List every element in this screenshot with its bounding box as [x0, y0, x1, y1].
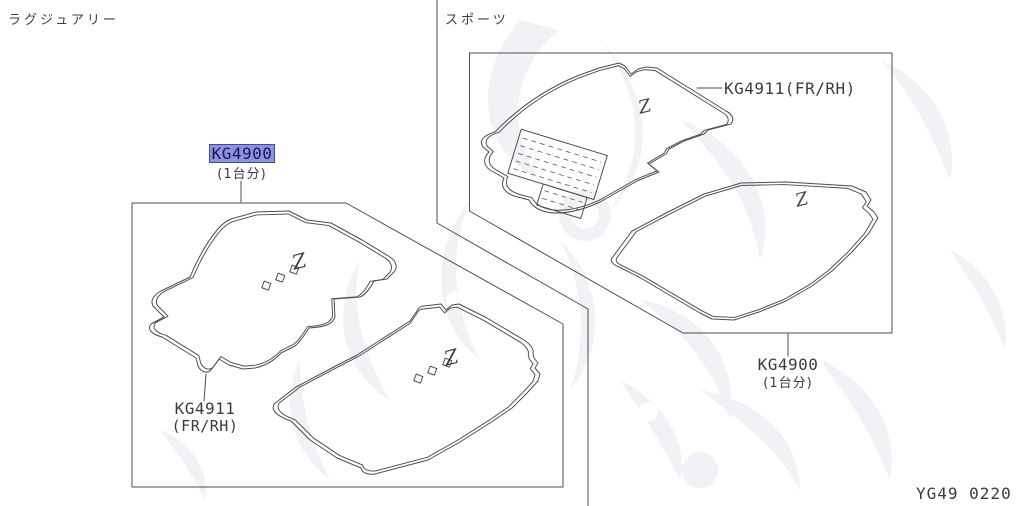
sport-front-mat-drawing: Z — [481, 63, 732, 221]
part-code-luxury-set[interactable]: KG4900 — [209, 144, 276, 163]
sport-rear-mat-drawing: Z — [611, 182, 878, 320]
parts-diagram-canvas: Z Z — [0, 0, 1024, 506]
z-emblem: Z — [289, 248, 310, 275]
position-note-luxury-front: (FR/RH) — [172, 417, 239, 435]
luxury-rear-mat-drawing: Z — [273, 304, 540, 474]
z-emblem: Z — [441, 344, 462, 371]
luxury-front-mat-drawing: Z — [149, 211, 396, 372]
part-code-sport-set[interactable]: KG4900 — [758, 355, 819, 374]
luxury-set-label: KG4900 (1台分) — [199, 144, 285, 182]
sport-set-label: KG4900 (1台分) — [748, 356, 828, 392]
z-emblem: Z — [635, 95, 654, 119]
section-title-sport: スポーツ — [445, 9, 509, 28]
z-emblem: Z — [792, 188, 811, 212]
diagram-line-art: Z Z — [0, 0, 1024, 506]
leader-line-luxury-front — [204, 374, 206, 401]
qty-note-luxury-set: (1台分) — [217, 167, 266, 182]
section-title-luxury: ラグジュアリー — [8, 9, 119, 28]
luxury-front-label: KG4911 (FR/RH) — [155, 400, 255, 435]
diagram-sheet-code: YG49 0220 — [916, 484, 1012, 503]
section-divider-line — [437, 0, 588, 506]
part-code-luxury-front[interactable]: KG4911 — [175, 399, 236, 418]
heel-pad-patch — [501, 129, 607, 220]
part-code-sport-front[interactable]: KG4911(FR/RH) — [724, 79, 856, 98]
luxury-option-box — [132, 203, 563, 487]
qty-note-sport-set: (1台分) — [763, 376, 812, 391]
